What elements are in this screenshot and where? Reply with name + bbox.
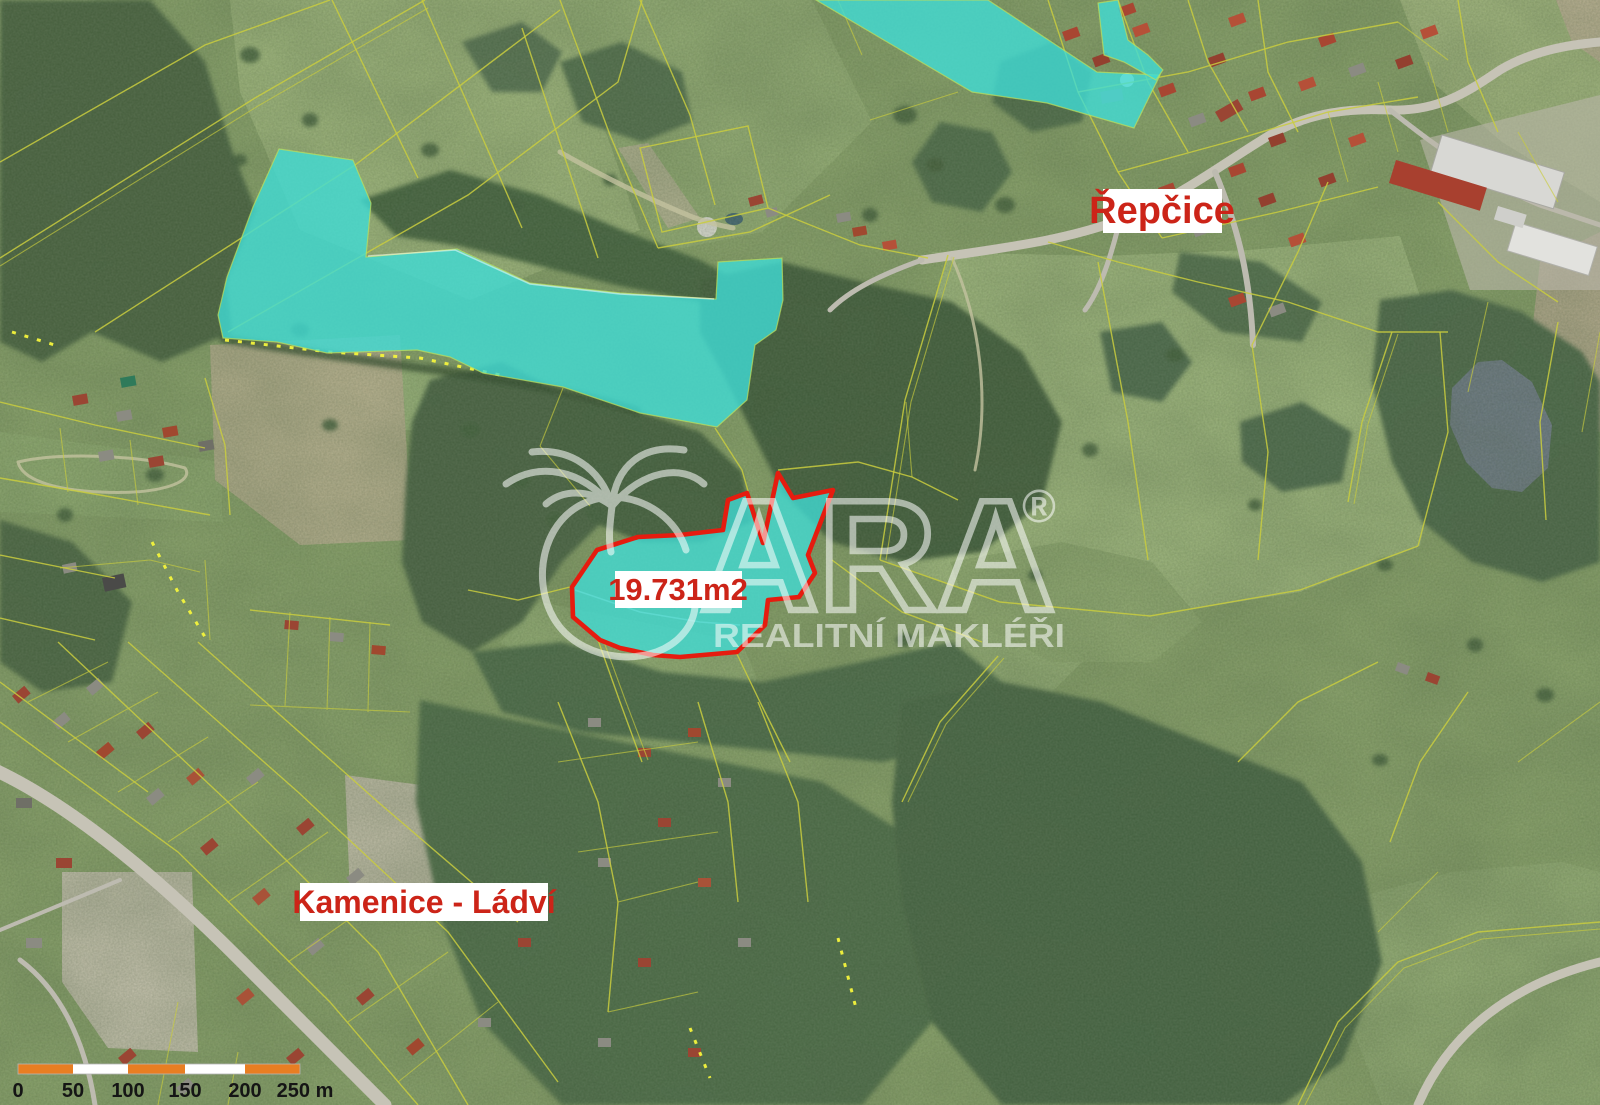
scale-segment — [73, 1064, 128, 1074]
area-label-repcice: Řepčice — [1089, 188, 1235, 232]
area-label-kamenice-ladvi: Kamenice - Ládví — [292, 884, 556, 920]
scale-segment — [245, 1064, 300, 1074]
watermark-subtitle: REALITNÍ MAKLÉŘI — [713, 617, 1065, 654]
scale-tick-100: 100 — [111, 1080, 144, 1102]
scale-tick-0: 0 — [12, 1080, 23, 1102]
parcel-area-label: 19.731m2 — [608, 572, 748, 607]
scale-tick-50: 50 — [62, 1080, 84, 1102]
scale-tick-200: 200 — [228, 1080, 261, 1102]
scale-segment — [128, 1064, 185, 1074]
satellite-map: ARA ® REALITNÍ MAKLÉŘI Řepčice Kamenice … — [0, 0, 1600, 1105]
scale-tick-250m: 250 m — [277, 1080, 334, 1102]
registered-mark: ® — [1022, 480, 1056, 532]
scale-tick-150: 150 — [168, 1080, 201, 1102]
map-screenshot: ARA ® REALITNÍ MAKLÉŘI Řepčice Kamenice … — [0, 0, 1600, 1105]
scale-segment — [185, 1064, 245, 1074]
scale-segment — [18, 1064, 73, 1074]
